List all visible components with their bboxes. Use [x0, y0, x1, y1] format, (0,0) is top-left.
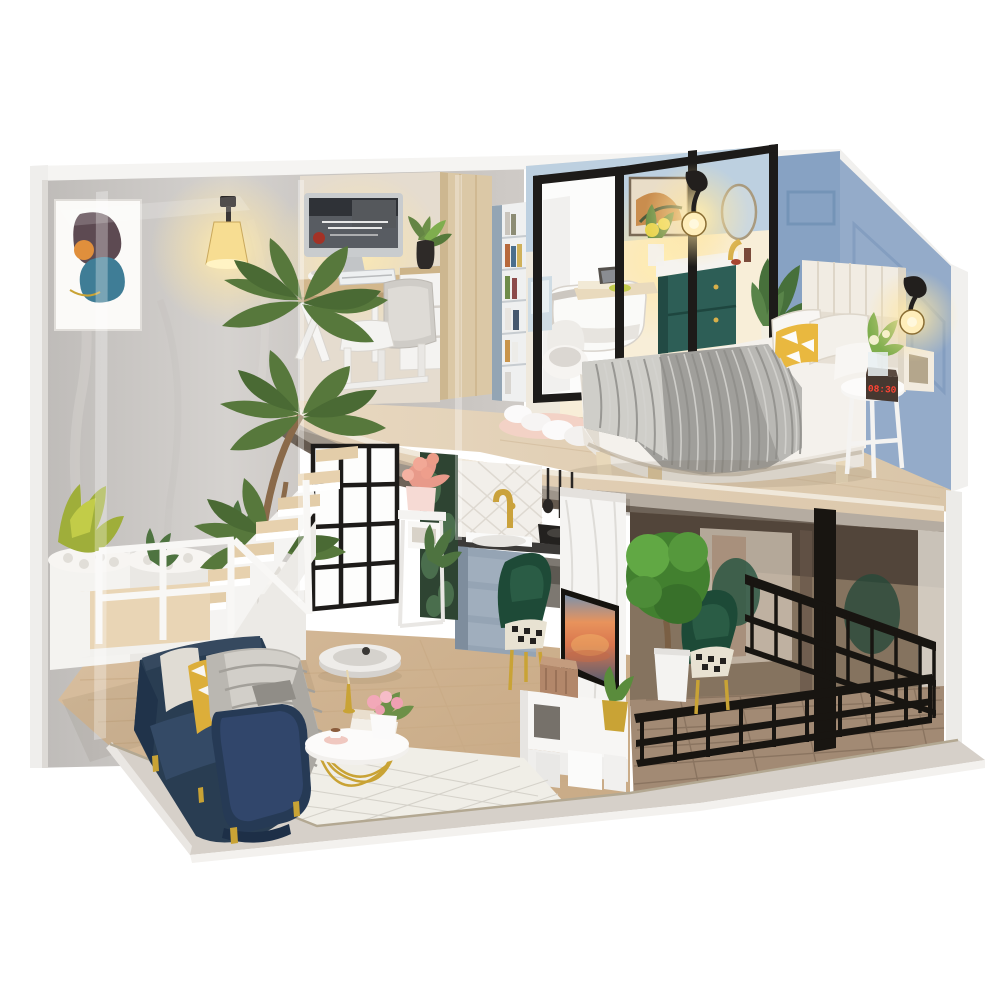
svg-text:08:30: 08:30 — [868, 383, 897, 395]
